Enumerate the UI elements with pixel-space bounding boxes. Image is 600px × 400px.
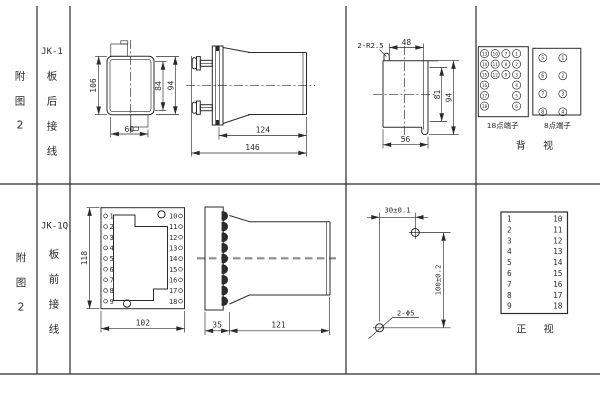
front-left-terminals: 123456789 — [104, 213, 114, 306]
terminal-number: 8 — [541, 110, 544, 116]
terminal-number: 6 — [541, 74, 544, 80]
table-cell: 18 — [553, 302, 563, 311]
terminal-circle — [179, 225, 183, 229]
dim-label: 81 — [433, 90, 442, 100]
terminal-tab-step — [121, 41, 128, 44]
terminal-number: 1 — [561, 56, 564, 62]
dim-arrow — [321, 329, 329, 334]
dim-arrow — [415, 45, 423, 50]
terminal-number: 13 — [482, 51, 488, 57]
table-cell: 1 — [507, 215, 512, 224]
terminal-number: 9 — [110, 298, 114, 306]
table-cell: 11 — [553, 225, 563, 234]
terminal-number: 7 — [505, 51, 508, 57]
body-taper — [230, 295, 250, 304]
model-label: JK-1Q — [41, 221, 68, 231]
dim-label: 94 — [166, 81, 175, 91]
dim-arrow — [439, 68, 444, 76]
dim-label: 106 — [89, 78, 98, 93]
table-cell: 2 — [507, 225, 512, 234]
dim-label: 35 — [212, 321, 222, 330]
dim-arrow — [229, 329, 237, 334]
dim-label: 30±0.1 — [384, 205, 410, 214]
dim-label: 102 — [136, 318, 151, 327]
terminal-number: 7 — [110, 276, 114, 284]
mounting-hole — [158, 211, 165, 218]
terminal-number: 9 — [505, 72, 508, 78]
terminal-profile — [222, 296, 228, 305]
mounting-hole — [123, 300, 130, 307]
table-cell: 8 — [507, 291, 512, 300]
dim-arrow — [173, 106, 178, 114]
model-label: JK-1 — [41, 47, 63, 57]
dim-arrow — [161, 62, 166, 70]
dim-arrow — [219, 133, 227, 138]
dim-arrow — [451, 61, 456, 69]
terminal-number: 14 — [482, 62, 488, 68]
terminal-number: 17 — [482, 93, 488, 99]
table-cell: 10 — [553, 215, 563, 224]
terminal-profile — [222, 222, 228, 231]
fig-label-char: 2 — [17, 120, 24, 132]
terminal-number: 12 — [493, 72, 499, 78]
terminal-number: 1 — [110, 213, 114, 221]
terminal-number: 4 — [110, 244, 114, 252]
dim-label: 56 — [401, 135, 411, 144]
table-cell: 7 — [507, 280, 512, 289]
dim-arrow — [173, 57, 178, 65]
mounting-screw-top — [192, 57, 212, 70]
table-cell: 15 — [553, 269, 563, 278]
dim-arrow — [192, 151, 200, 156]
terminal-number: 5 — [541, 56, 544, 62]
technical-drawing-page: 附 图 2 JK-1 板 后 接 线 附 图 2 JK-1Q 板 前 接 线 1… — [0, 0, 600, 400]
terminal-circle — [179, 235, 183, 239]
terminal-number: 15 — [482, 72, 488, 78]
terminal-number: 2 — [561, 74, 564, 80]
terminal-number: 15 — [169, 266, 177, 274]
dim-label: 100±0.2 — [434, 265, 443, 296]
wiring-label-char: 后 — [47, 96, 58, 108]
terminal-number: 8 — [110, 287, 114, 295]
terminal-number: 4 — [561, 110, 564, 116]
dim-arrow — [111, 132, 119, 137]
terminal-number: 13 — [169, 244, 177, 252]
table-cell: 12 — [553, 236, 563, 245]
table-grid — [0, 6, 600, 374]
dim-arrow — [451, 126, 456, 134]
dim-arrow — [371, 215, 379, 220]
dim-label: 146 — [245, 143, 260, 152]
jk1-front-view: 106 84 94 60 — [89, 40, 175, 134]
terminal-number: 12 — [169, 234, 177, 242]
terminal-circle — [104, 257, 108, 261]
dim-label: 84 — [154, 81, 163, 91]
body-taper — [230, 216, 250, 222]
wiring-label-char: 接 — [47, 120, 58, 133]
dim-arrow — [298, 133, 306, 138]
terminal-number: 18 — [169, 298, 177, 306]
dim-arrow — [441, 233, 446, 241]
dim-label: 60 — [124, 125, 134, 134]
terminal-circle — [179, 289, 183, 293]
terminal-number: 16 — [169, 276, 177, 284]
table-cell: 9 — [507, 302, 512, 311]
dim-arrow — [383, 142, 391, 147]
dim-arrow — [205, 329, 213, 334]
terminal-circle — [104, 246, 108, 250]
wiring-label-char: 板 — [49, 248, 60, 261]
terminals-8-grid: 56781234 — [539, 54, 567, 116]
view-caption: 正 视 — [516, 322, 560, 335]
dim-arrow — [140, 132, 148, 137]
terminal-number: 18 — [482, 104, 488, 110]
jk1-side-view: 124 146 — [186, 46, 315, 152]
terminal-number: 3 — [110, 234, 114, 242]
fig-label-char: 图 — [16, 277, 27, 289]
rear-terminal-views: 131415161718101112789123456 56781234 18点… — [478, 47, 581, 152]
drawing-canvas: 附 图 2 JK-1 板 后 接 线 附 图 2 JK-1Q 板 前 接 线 1… — [0, 0, 600, 400]
terminal-profile — [222, 254, 228, 263]
terminal-profile — [222, 211, 228, 220]
terminal-number: 10 — [493, 51, 499, 57]
jk1q-front-view: 123456789 101112131415161718 118 102 — [80, 208, 185, 328]
terminal-circle — [104, 267, 108, 271]
terminal-number: 7 — [541, 92, 544, 98]
table-cell: 13 — [553, 247, 563, 256]
terminal-circle — [179, 278, 183, 282]
dim-label: 118 — [80, 251, 89, 266]
terminal-number: 11 — [493, 62, 499, 68]
terminal-number: 2 — [110, 223, 114, 231]
fig-label-char: 图 — [15, 96, 26, 108]
terminal-caption: 8点端子 — [544, 121, 571, 130]
plate-section-fill — [216, 47, 220, 52]
terminal-number: 5 — [110, 255, 114, 263]
terminal-number: 1 — [515, 51, 518, 57]
terminal-circle — [104, 278, 108, 282]
terminal-number: 2 — [515, 62, 518, 68]
dim-arrow — [298, 151, 306, 156]
wiring-label-char: 前 — [49, 273, 60, 286]
terminals-18-grid: 131415161718101112789123456 — [480, 50, 520, 111]
table-cell: 5 — [507, 258, 512, 267]
hole-note: 2-Φ5 — [397, 308, 415, 317]
dim-label: 124 — [256, 126, 271, 135]
terminal-number: 4 — [515, 83, 518, 89]
dim-arrow — [161, 102, 166, 110]
screw-notch — [422, 61, 428, 135]
dim-arrow — [439, 113, 444, 121]
body-taper — [223, 115, 250, 124]
terminal-circle — [179, 267, 183, 271]
terminal-profile — [222, 243, 228, 252]
dim-arrow — [96, 107, 101, 115]
terminal-circle — [104, 299, 108, 303]
table-cell: 17 — [553, 291, 563, 300]
terminal-number: 3 — [515, 72, 518, 78]
table-cell: 6 — [507, 269, 512, 278]
terminal-profile — [222, 265, 228, 274]
terminal-profile — [222, 233, 228, 242]
terminal-circle — [179, 299, 183, 303]
mounting-screw-bottom — [192, 101, 212, 114]
top-row-headers: 附 图 2 JK-1 板 后 接 线 — [15, 47, 63, 158]
terminal-profile — [222, 275, 228, 284]
terminal-number: 3 — [561, 92, 564, 98]
terminal-number: 11 — [169, 223, 177, 231]
wiring-label-char: 线 — [47, 145, 58, 158]
component-step-outline — [114, 215, 168, 301]
terminal-profile — [222, 286, 228, 295]
dim-arrow — [176, 326, 184, 331]
terminal-circle — [179, 214, 183, 218]
terminal-circle — [104, 235, 108, 239]
plate-section-fill — [216, 120, 220, 125]
bottom-row-headers: 附 图 2 JK-1Q 板 前 接 线 — [16, 221, 68, 335]
terminal-circle — [179, 257, 183, 261]
dim-arrow — [389, 45, 397, 50]
terminal-caption: 18点端子 — [487, 121, 519, 130]
dim-label: 48 — [402, 38, 412, 47]
extension-line — [369, 318, 393, 339]
jk1q-side-view: 35 121 — [197, 207, 336, 330]
front-right-terminals: 101112131415161718 — [169, 213, 183, 306]
wiring-label-char: 接 — [49, 298, 60, 311]
radius-note: 2-R2.5 — [357, 41, 383, 50]
wiring-label-char: 板 — [47, 70, 58, 83]
table-cell: 3 — [507, 236, 512, 245]
side-terminal-row — [222, 211, 228, 306]
fig-label-char: 附 — [16, 251, 27, 264]
dim-arrow — [221, 329, 229, 334]
terminal-circle — [179, 246, 183, 250]
wiring-label-char: 线 — [49, 323, 60, 336]
terminal-number: 17 — [169, 287, 177, 295]
table-cell: 16 — [553, 280, 563, 289]
dim-arrow — [87, 301, 92, 309]
dim-arrow — [101, 326, 109, 331]
terminal-circle — [104, 289, 108, 293]
dim-arrow — [87, 208, 92, 216]
dim-arrow — [420, 142, 428, 147]
dim-arrow — [96, 56, 101, 64]
body-taper — [223, 48, 250, 53]
terminal-number: 10 — [169, 213, 177, 221]
dim-arrow — [415, 215, 423, 220]
table-cell: 4 — [507, 247, 512, 256]
table-cell: 14 — [553, 258, 563, 267]
terminal-number: 6 — [515, 104, 518, 110]
terminal-number: 6 — [110, 266, 114, 274]
terminal-number: 8 — [505, 62, 508, 68]
terminal-block-8 — [533, 48, 581, 115]
fig-label-char: 2 — [18, 302, 25, 314]
terminal-circle — [104, 225, 108, 229]
dim-arrow — [441, 320, 446, 328]
dim-label: 94 — [445, 93, 454, 103]
terminal-tab — [111, 44, 128, 56]
drill-template-view: 30±0.1 100±0.2 2-Φ5 — [376, 205, 443, 331]
view-caption: 背 视 — [516, 139, 560, 152]
table-cells: 123456789101112131415161718 — [507, 215, 563, 311]
terminal-number: 16 — [482, 83, 488, 89]
panel-cutout-view: 2-R2.5 48 81 94 56 — [357, 38, 453, 144]
terminal-number: 5 — [515, 93, 518, 99]
terminal-number: 14 — [169, 255, 177, 263]
dim-label: 121 — [271, 321, 286, 330]
terminal-circle — [104, 214, 108, 218]
front-terminal-table: 123456789101112131415161718 正 视 — [501, 212, 568, 335]
fig-label-char: 附 — [15, 70, 26, 83]
